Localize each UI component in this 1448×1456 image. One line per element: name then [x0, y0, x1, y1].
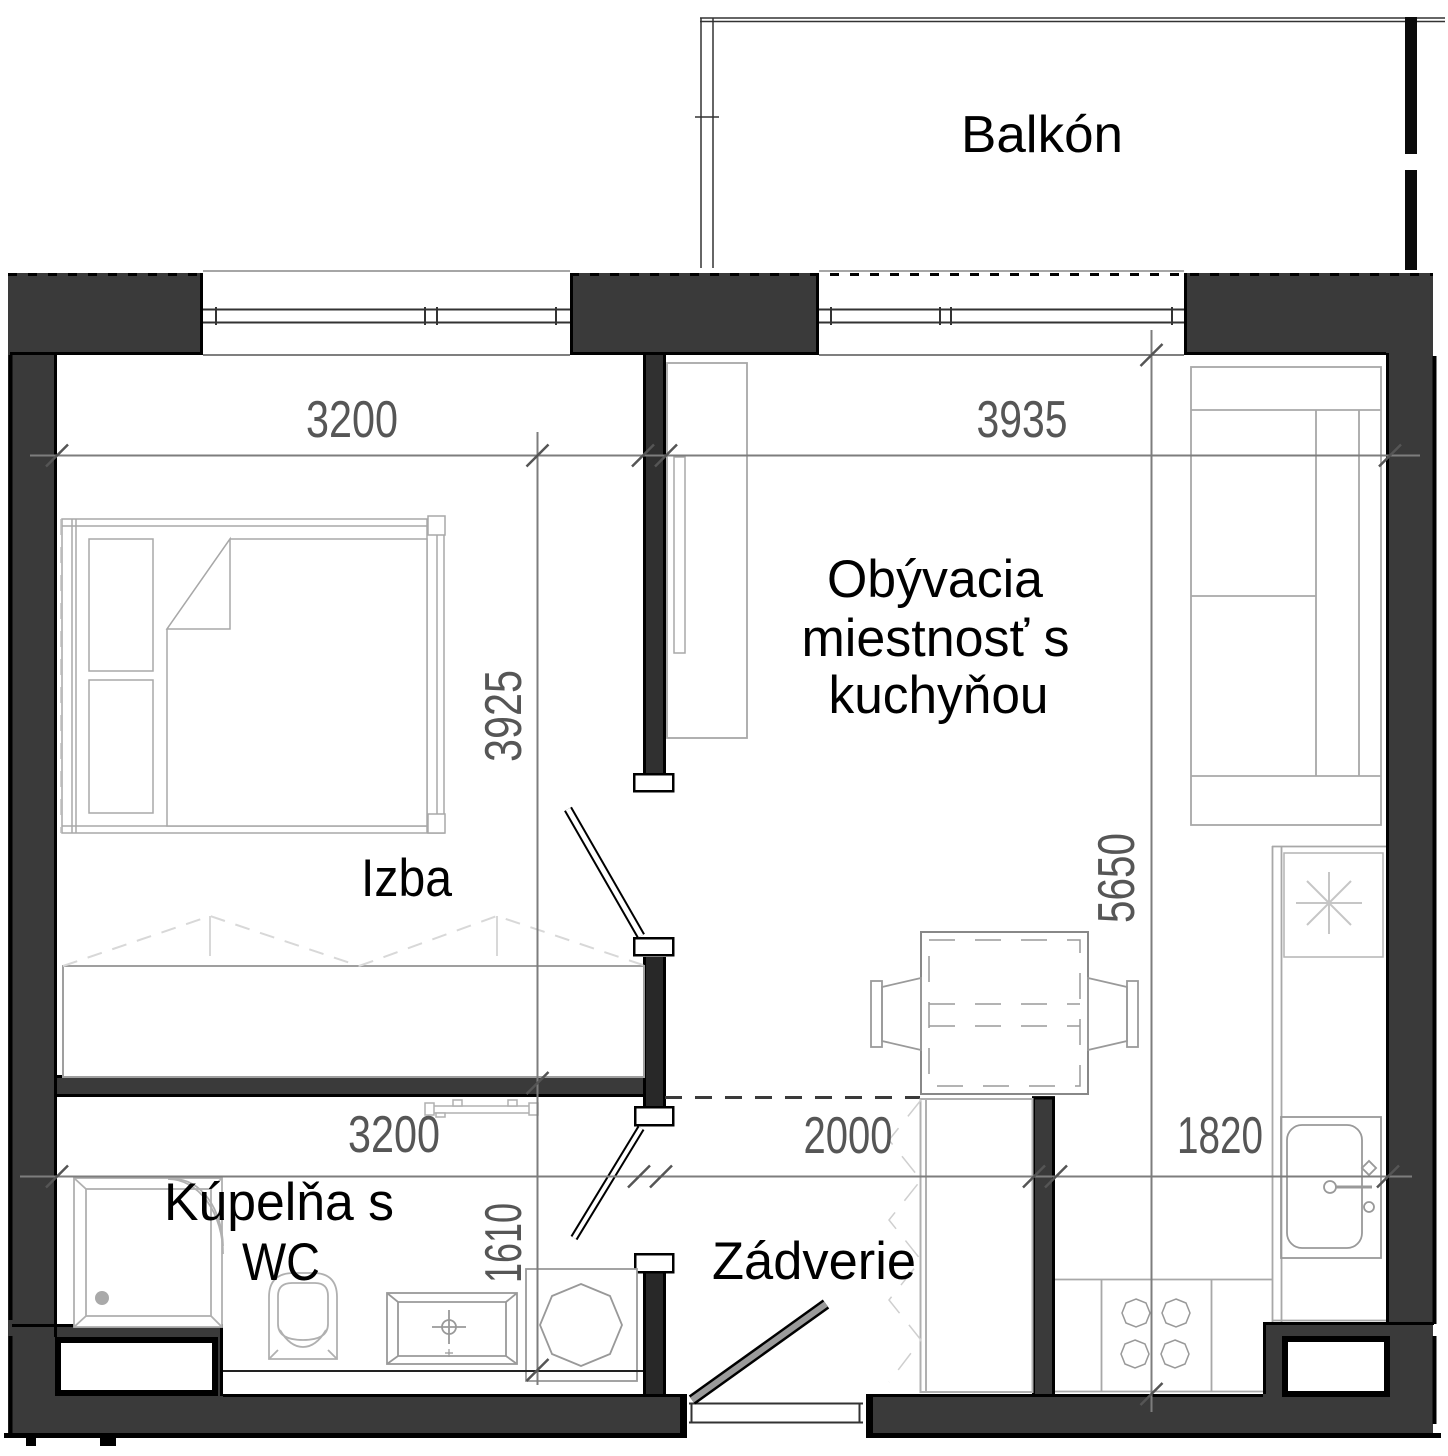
svg-text:3200: 3200 — [306, 391, 398, 449]
svg-text:miestnosť s: miestnosť s — [802, 609, 1070, 668]
svg-text:Izba: Izba — [361, 849, 452, 908]
svg-text:3200: 3200 — [348, 1106, 440, 1164]
svg-text:2000: 2000 — [804, 1107, 893, 1165]
svg-text:Zádverie: Zádverie — [712, 1232, 916, 1291]
svg-text:3935: 3935 — [977, 391, 1068, 449]
svg-text:Obývacia: Obývacia — [827, 550, 1044, 609]
svg-text:Kúpelňa s: Kúpelňa s — [164, 1173, 394, 1232]
svg-text:1820: 1820 — [1177, 1107, 1263, 1165]
svg-text:3925: 3925 — [475, 670, 533, 762]
svg-text:WC: WC — [242, 1233, 320, 1292]
svg-text:5650: 5650 — [1088, 833, 1146, 923]
svg-text:1610: 1610 — [475, 1203, 533, 1283]
svg-text:kuchyňou: kuchyňou — [829, 666, 1049, 725]
svg-text:Balkón: Balkón — [961, 106, 1123, 164]
